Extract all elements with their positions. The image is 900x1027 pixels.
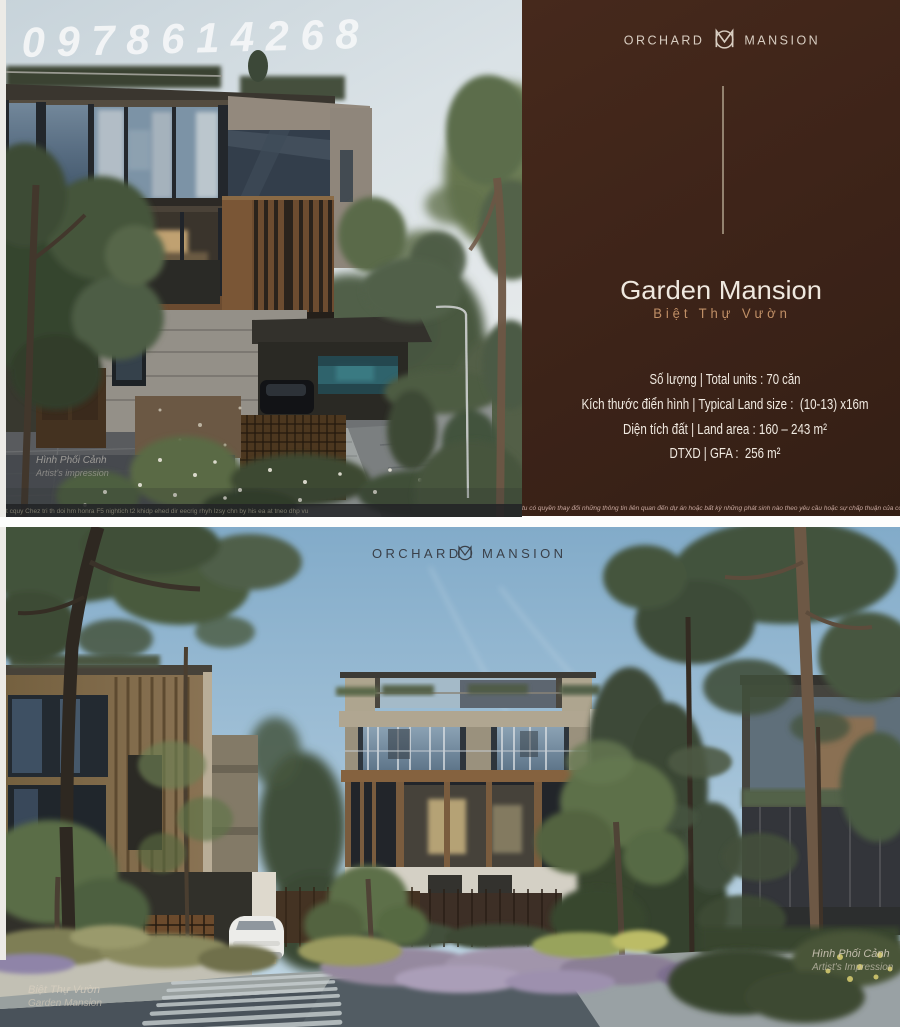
svg-text:0978614268: 0978614268 — [21, 10, 371, 66]
svg-text:t cquy Chez tri th doi hm honr: t cquy Chez tri th doi hm honra F5 night… — [6, 508, 309, 515]
svg-text:Hình Phối Cảnh: Hình Phối Cảnh — [36, 454, 107, 466]
svg-text:Garden Mansion: Garden Mansion — [28, 998, 102, 1009]
svg-text:Hình Phối Cảnh: Hình Phối Cảnh — [812, 948, 890, 960]
svg-text:ORCHARD: ORCHARD — [372, 546, 462, 561]
svg-text:Artist's impression: Artist's impression — [35, 468, 109, 478]
svg-text:Biệt Thự Vườn: Biệt Thự Vườn — [28, 984, 100, 996]
svg-text:MANSION: MANSION — [482, 546, 566, 561]
svg-text:Artist's Impression: Artist's Impression — [811, 962, 894, 973]
